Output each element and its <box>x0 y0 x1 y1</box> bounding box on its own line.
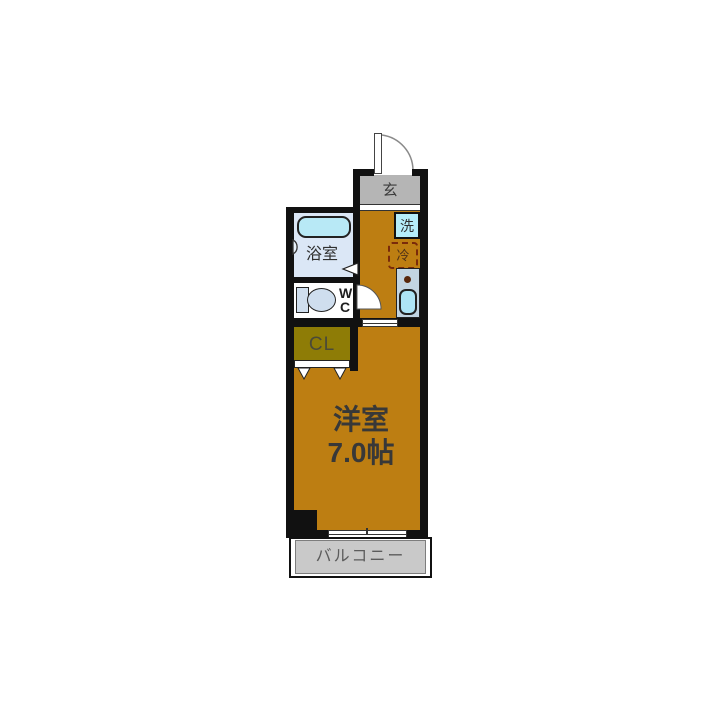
wc-door-swing-icon <box>356 284 382 310</box>
washer-label: 洗 <box>394 212 420 239</box>
entrance-step <box>360 204 420 211</box>
wall-right <box>420 169 428 538</box>
entrance-label: 玄 <box>360 179 420 201</box>
window-center-tick <box>366 528 368 534</box>
sliding-door-icon <box>362 319 398 327</box>
closet-label: CL <box>294 327 350 361</box>
main-room-label-line2: 7.0帖 <box>296 437 426 469</box>
toilet-label-c: C <box>340 300 350 314</box>
wall-hall-room-divider <box>286 318 428 327</box>
bathtub-icon <box>297 216 351 238</box>
closet-folding-door-icon <box>294 360 350 380</box>
bathroom-label: 浴室 <box>306 247 338 263</box>
wall-left <box>286 207 294 538</box>
entrance-door-leaf-icon <box>374 133 382 174</box>
toilet-bowl-icon <box>307 288 336 312</box>
toilet-label-w: W <box>339 286 352 300</box>
wall-bottom-left-step <box>294 510 317 532</box>
fridge-label: 冷 <box>388 242 418 269</box>
balcony-label: バルコニー <box>295 540 426 574</box>
wall-leftblock-top <box>286 207 360 213</box>
kitchen-sink-icon <box>399 289 417 315</box>
burner-dot-icon <box>404 276 411 283</box>
floor-plan: 玄 浴室 W C 洗 冷 CL 洋室 7.0帖 バルコニー <box>0 0 719 719</box>
bath-door-marker-icon <box>340 262 360 280</box>
main-room-label-line1: 洋室 <box>296 404 426 436</box>
wall-closet-stub <box>350 327 358 371</box>
